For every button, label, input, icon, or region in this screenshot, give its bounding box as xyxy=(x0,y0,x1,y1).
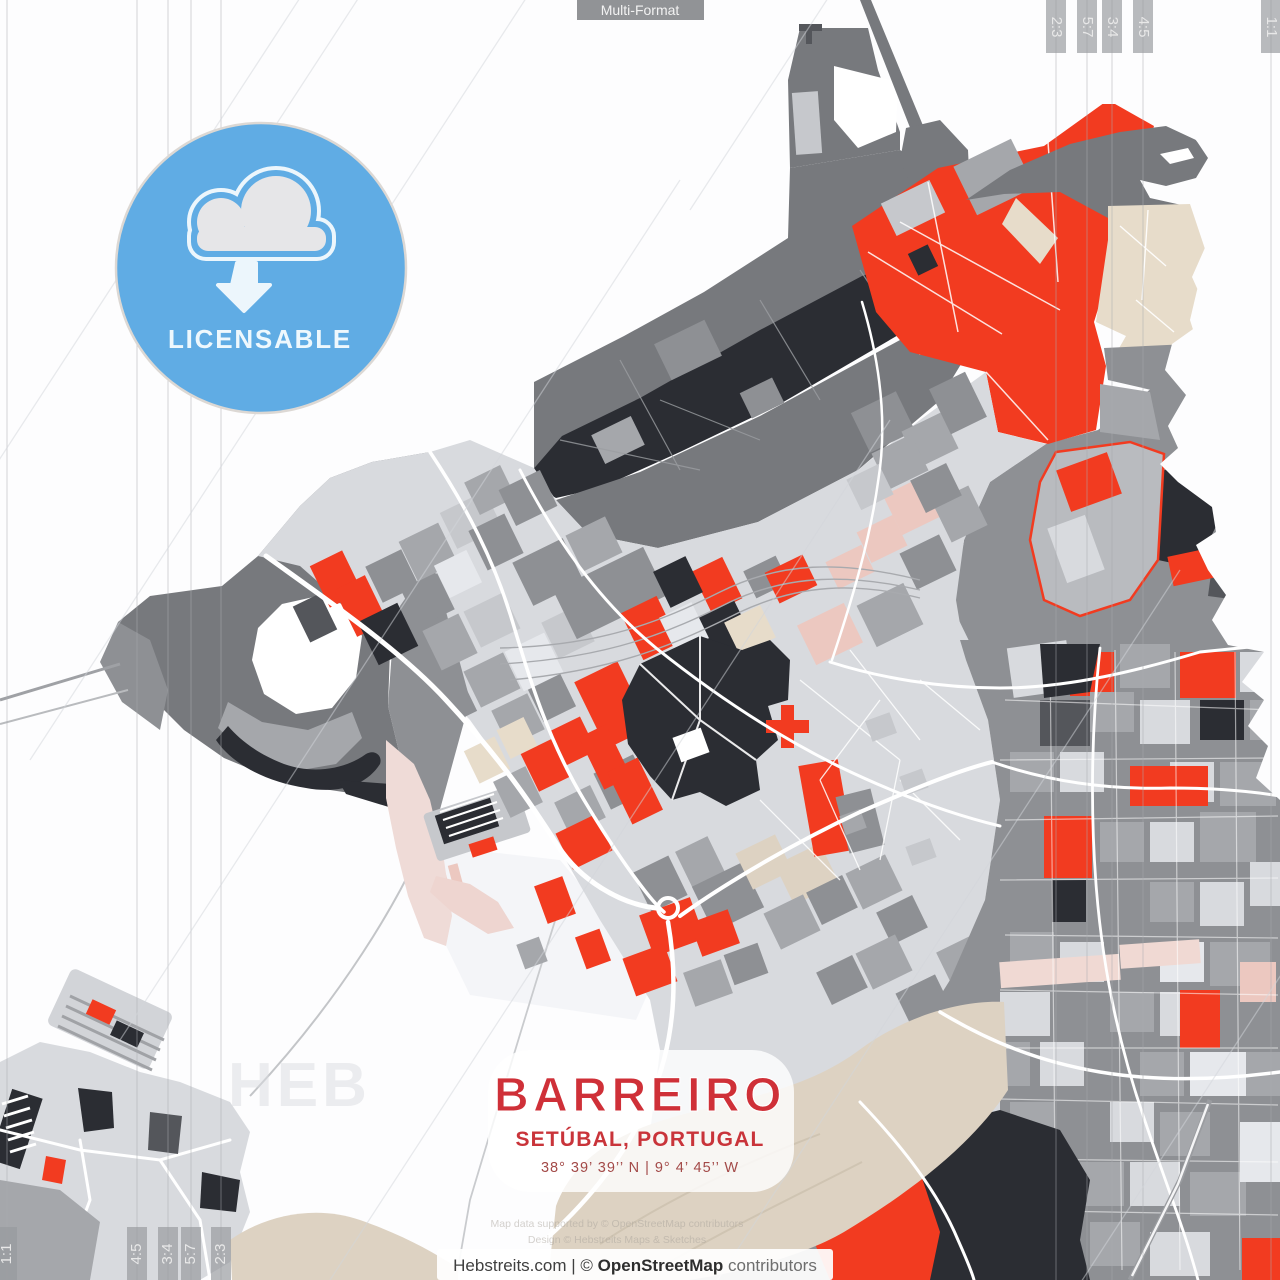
svg-text:Multi-Format: Multi-Format xyxy=(601,2,680,18)
svg-text:1:1: 1:1 xyxy=(1263,17,1280,38)
svg-text:4:5: 4:5 xyxy=(1135,17,1152,38)
svg-text:3:4: 3:4 xyxy=(159,1244,176,1265)
svg-text:5:7: 5:7 xyxy=(182,1244,199,1265)
svg-text:1:1: 1:1 xyxy=(0,1244,15,1265)
svg-text:3:4: 3:4 xyxy=(1104,17,1121,38)
svg-text:HEB: HEB xyxy=(228,1051,371,1120)
svg-text:LICENSABLE: LICENSABLE xyxy=(168,324,352,354)
svg-text:Hebstreits.com | © OpenStreetM: Hebstreits.com | © OpenStreetMap contrib… xyxy=(453,1256,817,1275)
svg-text:4:5: 4:5 xyxy=(128,1244,145,1265)
svg-text:SETÚBAL, PORTUGAL: SETÚBAL, PORTUGAL xyxy=(515,1127,764,1151)
svg-text:38° 39’ 39’’ N | 9° 4’ 4: 38° 39’ 39’’ N | 9° 4’ 45’’ W xyxy=(541,1160,739,1176)
svg-text:2:3: 2:3 xyxy=(212,1244,229,1265)
svg-text:Map data supported by © OpenSt: Map data supported by © OpenStreetMap co… xyxy=(491,1218,744,1230)
svg-text:5:7: 5:7 xyxy=(1079,17,1096,38)
svg-text:Design © Hebstreits Maps & Ske: Design © Hebstreits Maps & Sketches xyxy=(528,1234,706,1246)
svg-text:2:3: 2:3 xyxy=(1048,17,1065,38)
svg-text:BARREIRO: BARREIRO xyxy=(494,1069,786,1122)
